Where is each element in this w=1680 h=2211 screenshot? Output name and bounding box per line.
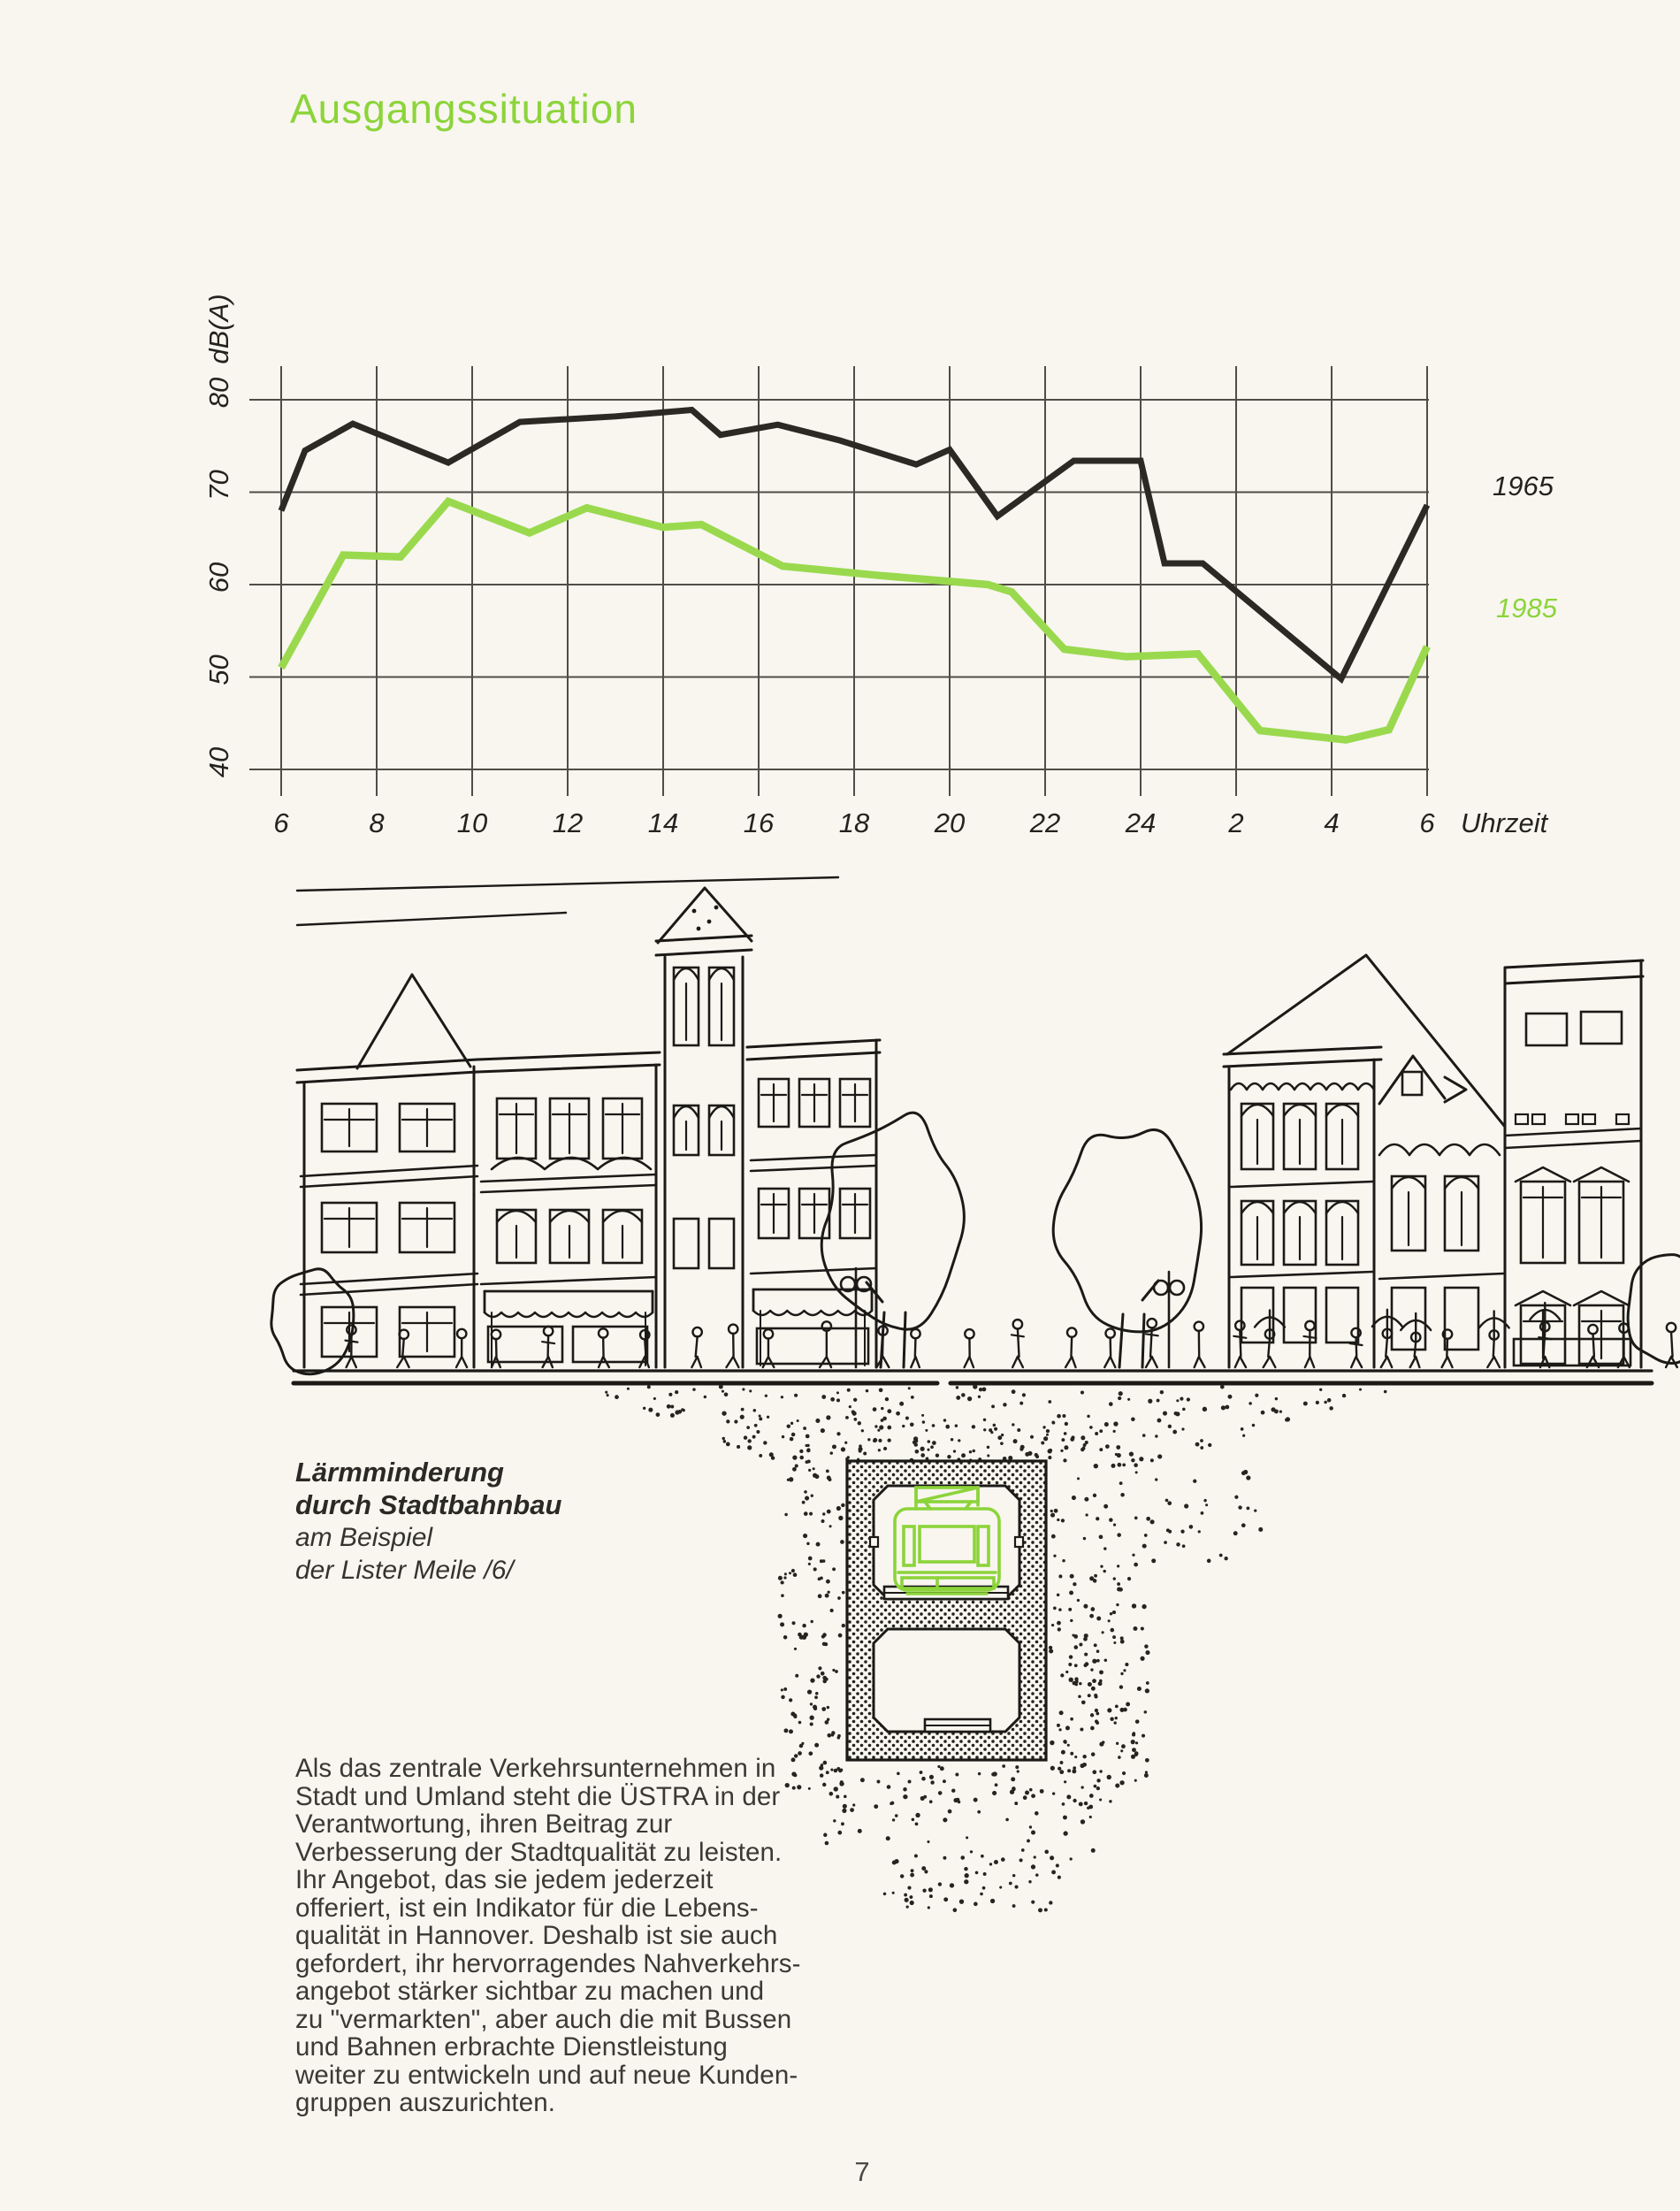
noise-level-chart: 8070605040dB(A)681012141618202224246Uhrz… [203, 294, 1558, 838]
body-line: angebot stärker sichtbar zu machen und [295, 1978, 861, 2006]
body-line: qualität in Hannover. Deshalb ist sie au… [295, 1922, 861, 1950]
body-line: gruppen auszurichten. [295, 2089, 861, 2117]
body-line: Ihr Angebot, das sie jedem jederzeit [295, 1866, 861, 1894]
svg-text:20: 20 [934, 807, 965, 838]
buildings-sketch [297, 877, 1643, 1367]
trees-sketch [271, 1113, 1680, 1374]
svg-text:24: 24 [1125, 807, 1156, 838]
caption-line: der Lister Meile /6/ [295, 1554, 561, 1587]
svg-text:80: 80 [203, 378, 234, 408]
svg-text:dB(A): dB(A) [203, 294, 234, 363]
svg-text:Uhrzeit: Uhrzeit [1461, 807, 1549, 838]
svg-text:6: 6 [273, 807, 289, 838]
svg-text:16: 16 [744, 807, 775, 838]
body-line: Als das zentrale Verkehrsunternehmen in [295, 1755, 861, 1783]
body-paragraph: Als das zentrale Verkehrsunternehmen inS… [295, 1755, 861, 2117]
svg-text:18: 18 [839, 807, 870, 838]
legend-1985: 1985 [1496, 593, 1558, 624]
svg-text:22: 22 [1029, 807, 1060, 838]
svg-text:60: 60 [203, 562, 234, 593]
caption-line: Lärmminderung [295, 1456, 561, 1488]
svg-text:70: 70 [203, 470, 234, 500]
svg-text:4: 4 [1324, 807, 1339, 838]
svg-text:8: 8 [369, 807, 385, 838]
report-page: 8070605040dB(A)681012141618202224246Uhrz… [0, 0, 1680, 2211]
svg-text:6: 6 [1419, 807, 1435, 838]
page-title: Ausgangssituation [290, 85, 638, 133]
svg-text:14: 14 [648, 807, 678, 838]
body-line: Stadt und Umland steht die ÜSTRA in der [295, 1783, 861, 1811]
caption-line: am Beispiel [295, 1521, 561, 1554]
page-number: 7 [822, 2156, 902, 2188]
street-lines [294, 1371, 1652, 1383]
body-line: Verantwortung, ihren Beitrag zur [295, 1810, 861, 1839]
figure-caption: Lärmminderung durch Stadtbahnbau am Beis… [295, 1456, 561, 1587]
body-line: offeriert, ist ein Indikator für die Leb… [295, 1894, 861, 1923]
caption-line: durch Stadtbahnbau [295, 1488, 561, 1521]
body-line: weiter zu entwickeln und auf neue Kunden… [295, 2062, 861, 2090]
svg-text:12: 12 [553, 807, 583, 838]
svg-text:50: 50 [203, 654, 234, 685]
tunnel-cross-section [847, 1461, 1046, 1760]
body-line: zu "vermarkten", aber auch die mit Busse… [295, 2006, 861, 2034]
svg-text:10: 10 [457, 807, 487, 838]
legend-1965: 1965 [1493, 471, 1554, 501]
svg-text:2: 2 [1227, 807, 1243, 838]
svg-text:40: 40 [203, 747, 234, 777]
body-line: gefordert, ihr hervorragendes Nahverkehr… [295, 1950, 861, 1978]
body-line: Verbesserung der Stadtqualität zu leiste… [295, 1839, 861, 1867]
body-line: und Bahnen erbrachte Dienstleistung [295, 2033, 861, 2062]
